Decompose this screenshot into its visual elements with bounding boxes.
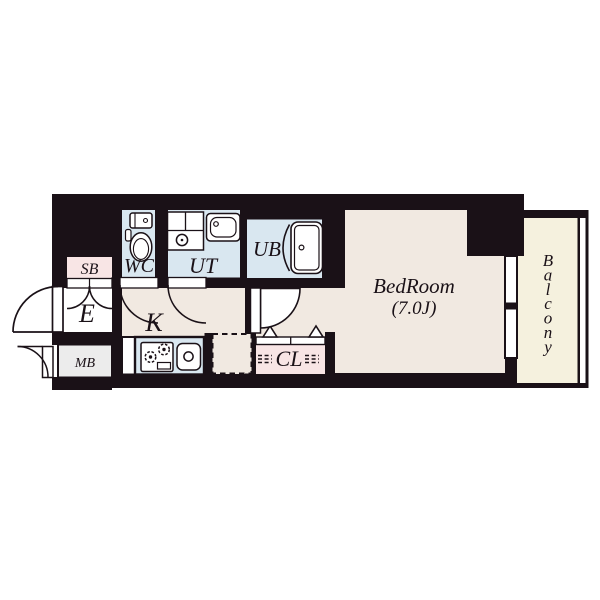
wall-closet-east xyxy=(325,332,335,375)
floor-plan: SB WC UT UB E K MB CL BedRoom (7.0J) Bal… xyxy=(0,0,600,600)
kitchen-counter xyxy=(135,337,204,375)
ut-label: UT xyxy=(189,253,219,278)
balcony-window xyxy=(505,256,517,358)
ub-label: UB xyxy=(253,237,281,261)
closet-label: CL xyxy=(276,346,303,371)
wall-left-upper xyxy=(52,256,67,288)
stove-icon xyxy=(141,343,173,372)
wall-bottom-mid xyxy=(112,374,335,388)
washbasin-icon xyxy=(207,214,241,242)
wall-pillar-ub-east xyxy=(322,194,345,288)
washing-machine-pan-icon xyxy=(168,212,204,250)
balcony-rail-inner xyxy=(578,218,581,383)
balcony-rail-bottom xyxy=(517,383,589,388)
bedroom-label: BedRoom xyxy=(373,274,455,298)
wall-counter-east xyxy=(205,333,213,375)
wall-bottom-right xyxy=(335,373,517,388)
wall-top xyxy=(52,194,524,210)
balcony-rail-outer xyxy=(586,210,589,388)
wall-bottom-left xyxy=(52,377,112,390)
bedroom-size-label: (7.0J) xyxy=(392,298,437,319)
mb-label: MB xyxy=(74,356,96,371)
bathtub-icon xyxy=(291,222,323,274)
wall-pillar-bedroom-ne xyxy=(467,194,524,256)
wall-window-south xyxy=(505,358,517,374)
sb-label: SB xyxy=(81,261,99,278)
wall-wc-ut xyxy=(155,210,168,278)
refrigerator-space-dashed xyxy=(213,334,252,374)
entrance-label: E xyxy=(78,299,95,328)
balcony-wall-top xyxy=(524,210,588,218)
wall-top-left-block xyxy=(52,194,122,257)
wall-entrance-kitchen xyxy=(112,256,122,378)
counter-side-panel xyxy=(122,337,135,375)
floor-plan-page: SB WC UT UB E K MB CL BedRoom (7.0J) Bal… xyxy=(0,0,600,600)
wc-label: WC xyxy=(124,255,155,277)
kitchen-sink-icon xyxy=(177,344,201,371)
wall-entrance-bottom xyxy=(52,332,112,345)
kitchen-label: K xyxy=(144,308,164,337)
